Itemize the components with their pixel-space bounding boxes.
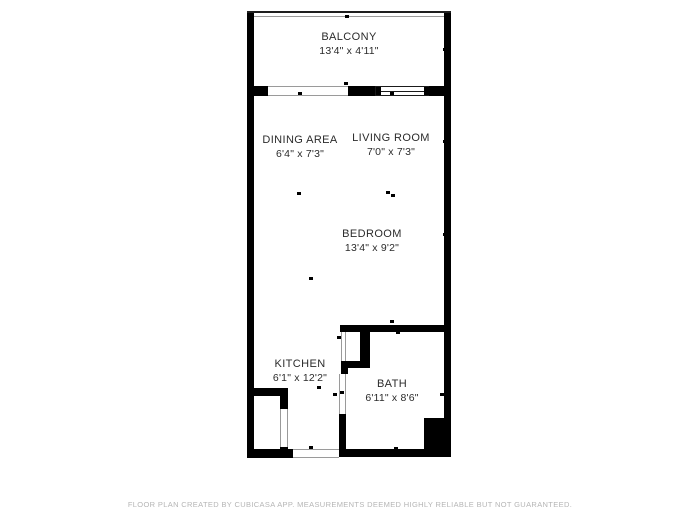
nook-opening	[345, 332, 346, 361]
room-dimensions: 7'0" x 7'3"	[301, 146, 481, 159]
measure-tick	[396, 331, 400, 334]
measure-tick	[394, 447, 398, 450]
closet-door-opening	[280, 409, 281, 447]
closet-door-opening	[287, 409, 288, 447]
room-label-balcony: BALCONY 13'4" x 4'11"	[259, 31, 439, 58]
measure-tick	[344, 82, 348, 85]
room-name: KITCHEN	[210, 358, 390, 371]
wall-closet-east-upper	[280, 396, 288, 409]
room-label-living-room: LIVING ROOM 7'0" x 7'3"	[301, 132, 481, 159]
sliding-door-opening	[268, 86, 348, 87]
shaft-block	[424, 418, 451, 457]
measure-tick	[337, 336, 341, 339]
floor-plan: BALCONY 13'4" x 4'11" DINING AREA 6'4" x…	[0, 0, 700, 525]
measure-tick	[386, 191, 390, 194]
window-midline	[381, 91, 424, 92]
measure-tick	[248, 334, 252, 337]
wall-kitchen-south	[247, 449, 293, 458]
room-name: BATH	[302, 378, 482, 391]
window-symbol	[375, 86, 430, 96]
entry-opening	[293, 449, 339, 450]
room-label-bedroom: BEDROOM 13'4" x 9'2"	[282, 228, 462, 255]
wall-balcony-south	[348, 86, 376, 96]
room-name: BEDROOM	[282, 228, 462, 241]
footer-disclaimer: FLOOR PLAN CREATED BY CUBICASA APP. MEAS…	[0, 500, 700, 509]
balcony-railing-line	[254, 16, 444, 17]
measure-tick	[443, 48, 447, 51]
room-dimensions: 13'4" x 9'2"	[282, 242, 462, 255]
wall-balcony-south	[247, 86, 268, 96]
room-dimensions: 6'11" x 8'6"	[302, 392, 482, 405]
measure-tick	[309, 446, 313, 449]
measure-tick	[249, 233, 253, 236]
measure-tick	[309, 277, 313, 280]
wall-balcony-south	[429, 86, 451, 96]
nook-opening	[341, 332, 342, 361]
sliding-door-opening	[268, 95, 348, 96]
measure-tick	[391, 194, 395, 197]
room-name: BALCONY	[259, 31, 439, 44]
measure-tick	[345, 15, 349, 18]
floor-plan-page: BALCONY 13'4" x 4'11" DINING AREA 6'4" x…	[0, 0, 700, 525]
measure-tick	[297, 192, 301, 195]
wall-closet-north	[251, 388, 288, 396]
room-label-bath: BATH 6'11" x 8'6"	[302, 378, 482, 405]
balcony-railing-line	[247, 11, 451, 13]
entry-opening	[293, 457, 339, 458]
measure-tick	[390, 320, 394, 323]
measure-tick	[298, 92, 302, 95]
measure-tick	[249, 48, 253, 51]
room-name: LIVING ROOM	[301, 132, 481, 145]
room-dimensions: 13'4" x 4'11"	[259, 45, 439, 58]
measure-tick	[390, 92, 394, 95]
